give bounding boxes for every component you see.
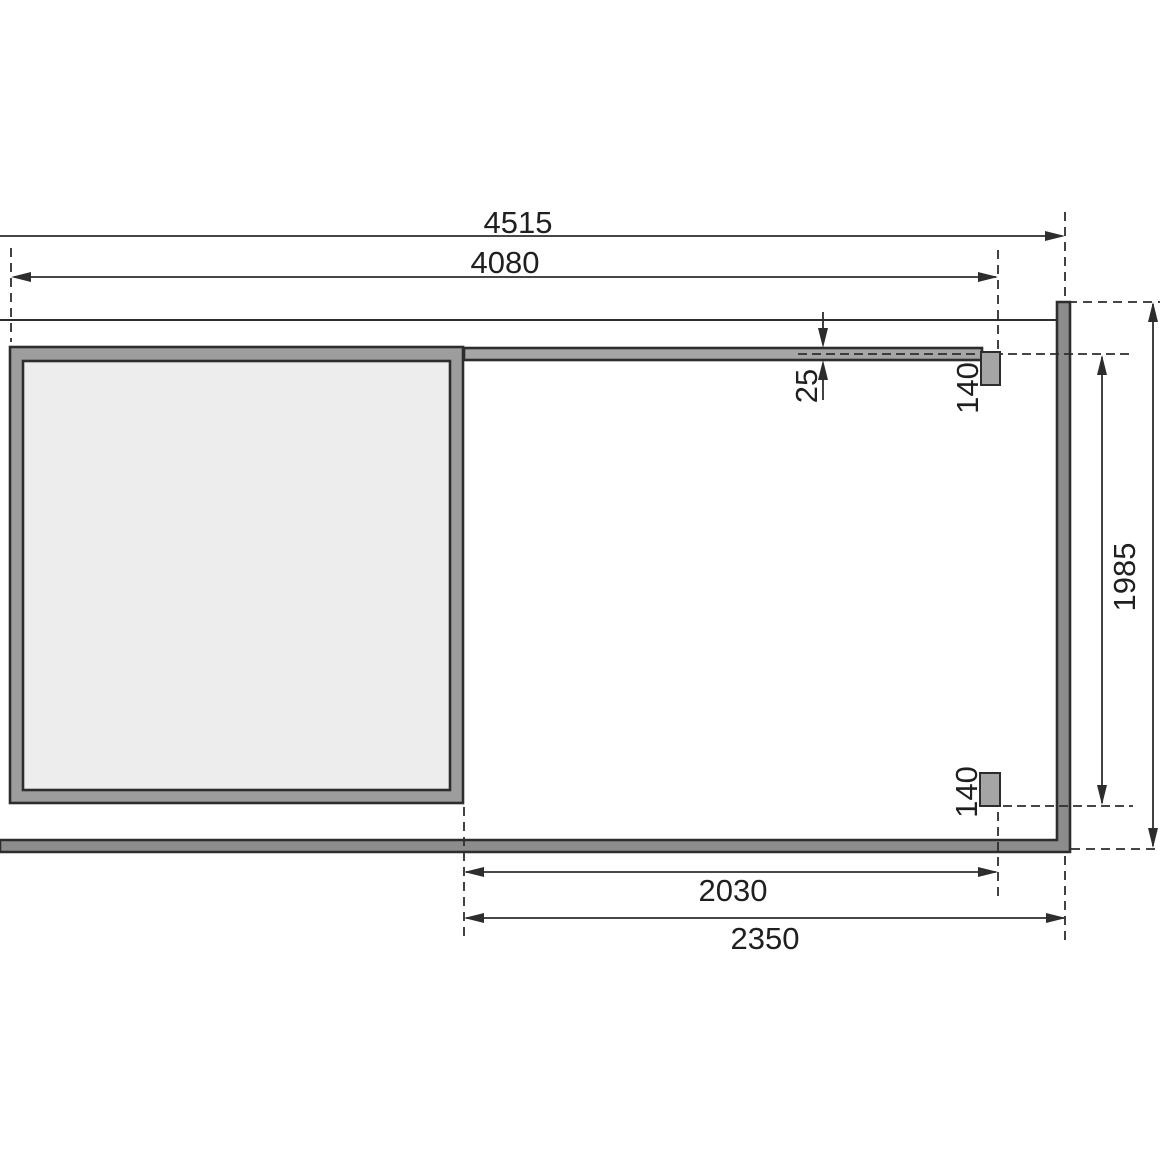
dim-label-140-front: 140 bbox=[950, 362, 985, 414]
dim-label-2350: 2350 bbox=[731, 921, 800, 956]
dim-label-4080: 4080 bbox=[471, 245, 540, 280]
shed-interior bbox=[23, 361, 450, 790]
dim-label-140-back: 140 bbox=[949, 766, 984, 818]
technical-drawing-canvas: 4515 4080 25 140 140 1985 2030 2350 bbox=[0, 0, 1160, 1160]
dim-label-2030: 2030 bbox=[699, 873, 768, 908]
dim-label-4515: 4515 bbox=[484, 205, 553, 240]
dim-label-25: 25 bbox=[789, 369, 824, 403]
dim-label-1985: 1985 bbox=[1107, 543, 1142, 612]
